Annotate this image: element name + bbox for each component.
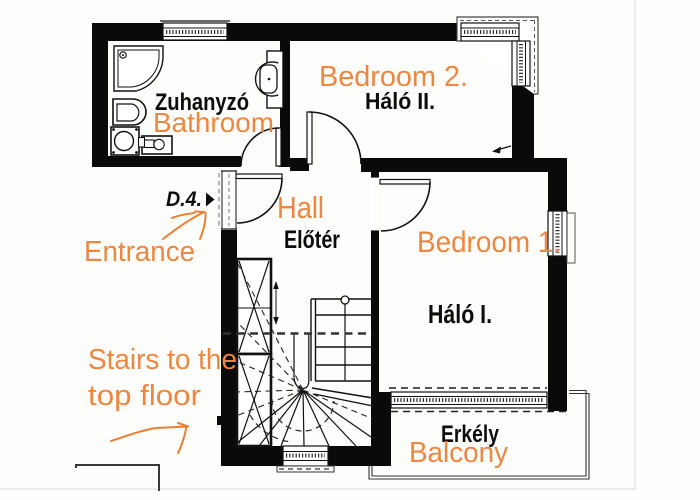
svg-text:Bedroom 1.: Bedroom 1. bbox=[417, 226, 561, 259]
svg-text:D.4.: D.4. bbox=[166, 188, 202, 211]
svg-text:Balcony: Balcony bbox=[409, 437, 508, 469]
svg-text:Bathroom: Bathroom bbox=[153, 107, 274, 138]
svg-text:Háló I.: Háló I. bbox=[428, 299, 492, 329]
svg-text:Stairs to the: Stairs to the bbox=[88, 344, 237, 376]
svg-text:Entrance: Entrance bbox=[84, 236, 195, 268]
svg-text:top floor: top floor bbox=[88, 380, 201, 412]
svg-text:Előtér: Előtér bbox=[284, 226, 340, 254]
svg-text:Háló II.: Háló II. bbox=[365, 88, 435, 114]
svg-text:Hall: Hall bbox=[277, 190, 324, 225]
